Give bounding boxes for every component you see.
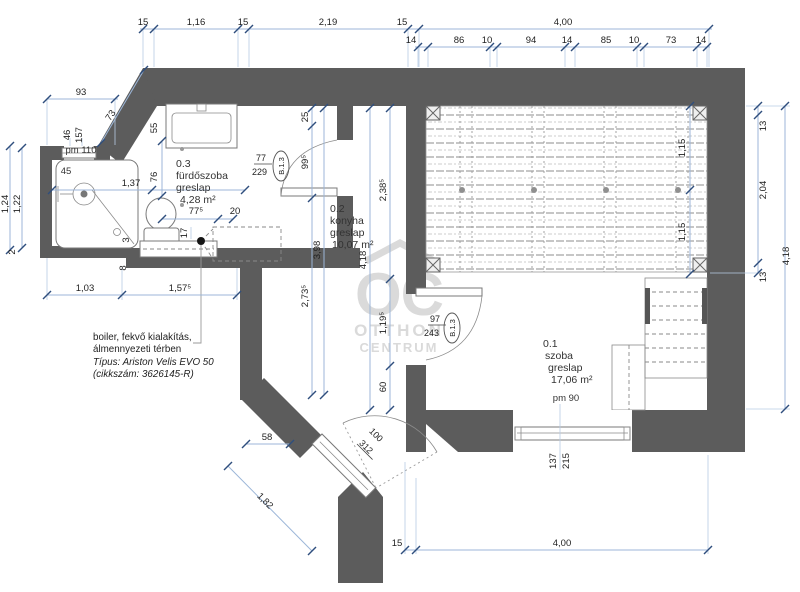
dim-label: 77⁵ xyxy=(189,206,204,217)
dim-label: 58 xyxy=(262,432,273,443)
dim-label: 4,18 xyxy=(781,247,792,266)
wall-shower-left xyxy=(40,146,52,258)
wall-right xyxy=(707,68,745,452)
room-area: 10,07 m² xyxy=(332,239,374,251)
room-number: 0.1 xyxy=(543,338,558,350)
dim-label: 15 xyxy=(238,17,249,28)
boiler-point xyxy=(197,237,205,245)
stair-rail-right xyxy=(702,288,707,324)
dim-label: 2,38⁵ xyxy=(378,179,389,201)
dim-label: 2,73⁵ xyxy=(300,285,311,307)
dim-label: 1,24 xyxy=(0,195,11,214)
dim-label: 2,04 xyxy=(758,181,769,200)
door-height-label: 243 xyxy=(424,328,439,338)
dim-label: 1,22 xyxy=(12,195,23,214)
wall-bathroom-right-upper xyxy=(337,106,353,140)
shower-dim-label: 45 xyxy=(61,166,72,177)
door-code-label: B.1.3 xyxy=(277,157,286,175)
wall-divider-lower xyxy=(406,365,426,452)
dim-label: 14 xyxy=(406,35,417,46)
dim-label: 1,15 xyxy=(677,223,688,242)
room-name: fürdőszoba xyxy=(176,170,228,182)
dim-label: 15 xyxy=(397,17,408,28)
dim-label: 4,00 xyxy=(554,17,573,28)
parapet-label: pm 110 xyxy=(66,145,97,156)
spot-dot xyxy=(180,147,184,151)
note-line: (cikkszám: 3626145-R) xyxy=(93,369,194,380)
parapet-label: pm 90 xyxy=(553,393,579,404)
wall-entry-diagonal xyxy=(242,378,322,458)
room-area: 4,28 m² xyxy=(180,194,216,206)
living-door-leaf xyxy=(416,288,482,296)
dim-label: 13 xyxy=(758,121,769,132)
dim-label: 14 xyxy=(562,35,573,46)
wall-divider-upper xyxy=(406,106,426,294)
toilet-bowl xyxy=(146,198,176,230)
room-name: szoba xyxy=(545,350,573,362)
dim-label: 86 xyxy=(454,35,465,46)
door-height-label: 229 xyxy=(252,167,267,177)
gallery-structure xyxy=(426,106,707,272)
dim-label: 85 xyxy=(601,35,612,46)
dim-label: 2 xyxy=(7,249,18,254)
dim-label: 1,57⁵ xyxy=(169,283,191,294)
floorplan-canvas: OC OTTHON CENTRUM xyxy=(0,0,800,592)
gallery-stairs xyxy=(612,278,707,410)
room-name: konyha xyxy=(330,215,364,227)
entry-door-width-label: 100 xyxy=(367,426,385,444)
wall-top xyxy=(143,68,745,106)
door-width-label: 97 xyxy=(430,314,440,324)
dim-label: 3,98 xyxy=(312,241,323,260)
dim-label: 17 xyxy=(179,228,190,239)
dim-label: 60 xyxy=(378,382,389,393)
note-line: álmennyezeti térben xyxy=(93,344,181,355)
gallery-beam-field xyxy=(426,106,707,272)
dim-label: 1,82 xyxy=(254,491,275,512)
door-width-label: 77 xyxy=(256,153,266,163)
dim-label: 93 xyxy=(76,87,87,98)
stair-landing xyxy=(612,345,645,410)
stair-rail-left xyxy=(645,288,650,324)
room-number: 0.3 xyxy=(176,158,191,170)
note-line: Típus: Ariston Velis EVO 50 xyxy=(93,357,214,368)
room-finish: greslap xyxy=(330,227,365,239)
room-area: 17,06 m² xyxy=(551,374,593,386)
room-number: 0.2 xyxy=(330,203,345,215)
dim-label: 10 xyxy=(629,35,640,46)
dim-label: 1,19⁵ xyxy=(378,312,389,334)
dim-label: 10 xyxy=(482,35,493,46)
dim-label: 14 xyxy=(696,35,707,46)
dim-label: 94 xyxy=(526,35,537,46)
dim-label: 1,16 xyxy=(187,17,206,28)
room-finish: greslap xyxy=(548,362,583,374)
note-line: boiler, fekvő kialakítás, xyxy=(93,332,192,343)
dim-label: 15 xyxy=(138,17,149,28)
dim-label: 13 xyxy=(758,272,769,283)
entry-door-height-label: 312 xyxy=(357,438,375,456)
dim-label: 20 xyxy=(230,206,241,217)
dim-label: 1,37 xyxy=(122,178,141,189)
dim-label: 76 xyxy=(149,172,160,183)
room-window xyxy=(513,404,632,470)
dim-label: 25 xyxy=(300,112,311,123)
window-height-label: 215 xyxy=(561,453,572,469)
dim-label: 99⁵ xyxy=(300,155,311,170)
dim-label: 55 xyxy=(149,123,160,134)
dim-label: 4,00 xyxy=(553,538,572,549)
dim-label: 73 xyxy=(666,35,677,46)
door-code-label: B.1.3 xyxy=(448,319,457,337)
dim-label: 1,03 xyxy=(76,283,95,294)
dim-label: 46 xyxy=(62,130,73,141)
wall-kitchen-left xyxy=(240,268,262,400)
dim-label: 8 xyxy=(118,265,129,270)
dim-label: 15 xyxy=(392,538,403,549)
dim-label: 157 xyxy=(74,127,85,143)
room-finish: greslap xyxy=(176,182,211,194)
bathroom-door-leaf xyxy=(281,188,337,196)
dim-label: 4,18 xyxy=(358,251,369,270)
watermark-line2: CENTRUM xyxy=(360,340,439,355)
dim-label: 3 xyxy=(121,237,132,242)
washbasin xyxy=(166,104,237,148)
dim-label: 1,15 xyxy=(677,139,688,158)
boiler-note: boiler, fekvő kialakítás, álmennyezeti t… xyxy=(93,332,214,380)
dim-label: 2,19 xyxy=(319,17,338,28)
floorplan-page: OC OTTHON CENTRUM xyxy=(0,0,800,592)
window-width-label: 137 xyxy=(548,453,559,469)
